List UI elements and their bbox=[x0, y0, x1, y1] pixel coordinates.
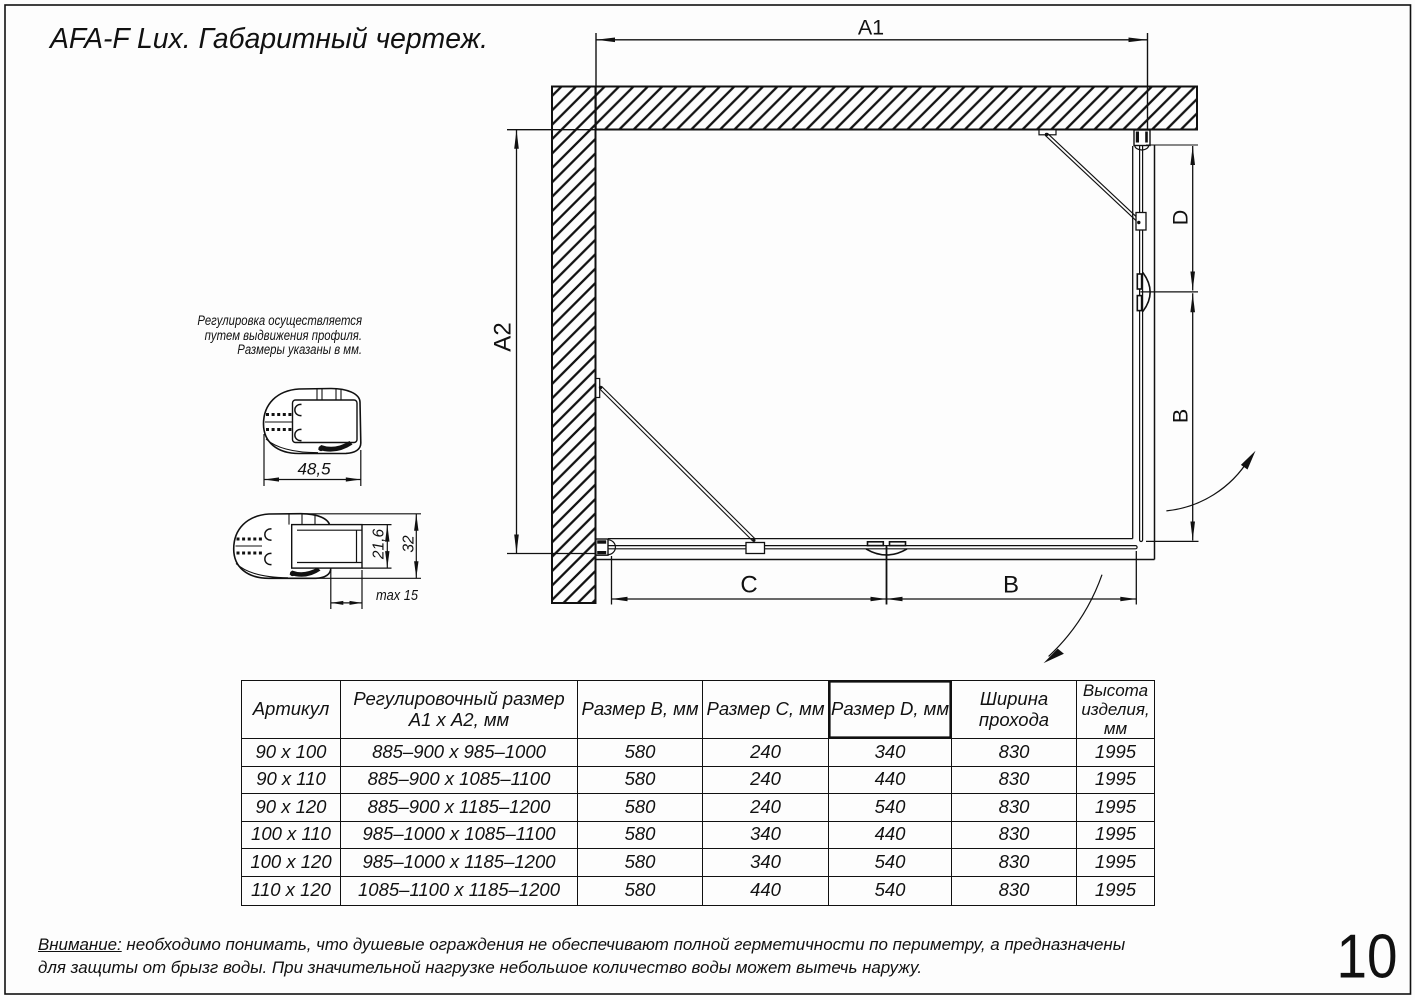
svg-text:max 15: max 15 bbox=[376, 587, 419, 604]
svg-text:D: D bbox=[1169, 210, 1193, 226]
svg-text:AFA-F Lux. Габаритный чертеж.: AFA-F Lux. Габаритный чертеж. bbox=[48, 23, 488, 55]
svg-text:C: C bbox=[740, 572, 757, 599]
svg-text:B: B bbox=[1003, 572, 1019, 599]
svg-text:32: 32 bbox=[401, 535, 418, 553]
svg-text:B: B bbox=[1169, 409, 1193, 423]
svg-text:21,6: 21,6 bbox=[371, 529, 388, 561]
svg-text:10: 10 bbox=[1337, 923, 1398, 992]
svg-text:48,5: 48,5 bbox=[297, 460, 331, 479]
svg-text:A1: A1 bbox=[858, 16, 884, 40]
svg-text:A2: A2 bbox=[490, 322, 517, 351]
